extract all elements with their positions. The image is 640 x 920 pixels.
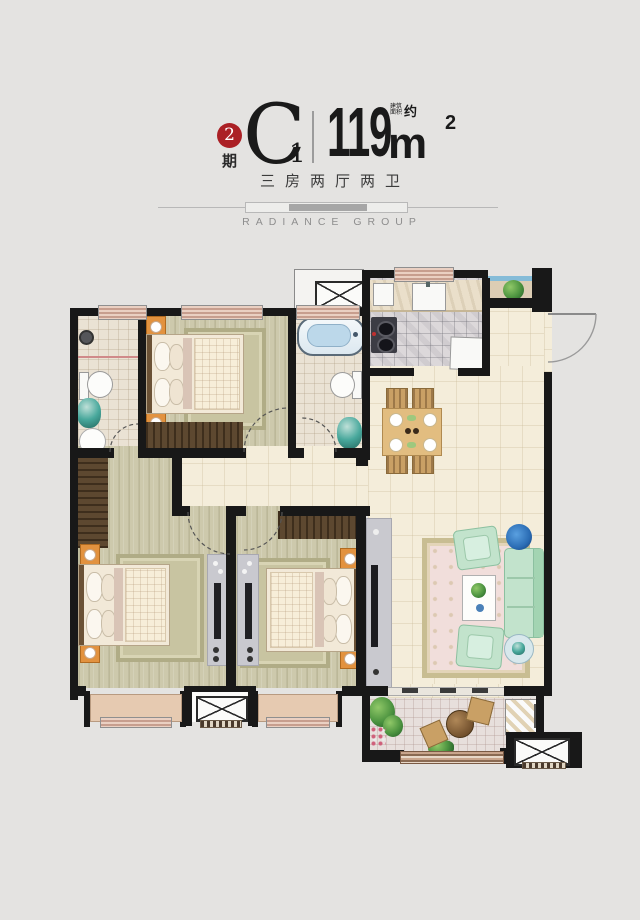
floor-plan-page: 2 期 C 1 119 建筑 面积 约 m 2 三房两厅两卫 RADIANCE … (0, 0, 640, 920)
bathroom2-door-arc (302, 418, 336, 452)
entry-door-arc (548, 314, 596, 362)
door-swing-overlay (0, 0, 640, 920)
bedroom3-door-arc (244, 512, 282, 550)
bathroom1-door-arc (110, 424, 138, 452)
master-door-arc (188, 512, 230, 554)
bedroom2-door-arc (244, 408, 288, 452)
